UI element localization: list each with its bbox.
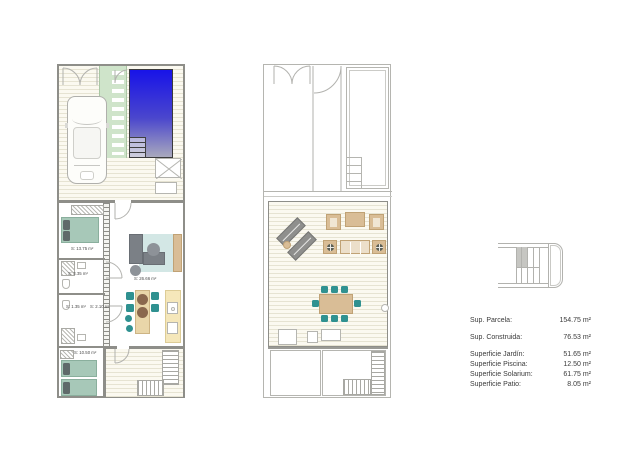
stair-detail — [498, 243, 563, 288]
coffee-table — [345, 212, 365, 227]
area-label: Superficie Patio: — [470, 381, 521, 389]
floor-plan-ground: S: 13.75 m² S: 3.35 m² S: 1.35 m² S: 2.1… — [57, 64, 185, 398]
armchair — [369, 214, 384, 230]
table-row: Superficie Solarium: 61.75 m² — [470, 371, 591, 379]
floor-plan-upper — [263, 64, 391, 398]
plant-icon — [327, 244, 334, 251]
room-lower-left — [270, 350, 321, 396]
table-row: Superficie Jardín: 51.65 m² — [470, 351, 591, 359]
wall-fixture — [381, 304, 389, 312]
upper-band-line — [264, 191, 392, 192]
table-row: Superficie Piscina: 12.50 m² — [470, 361, 591, 369]
dining-chair — [312, 300, 319, 307]
side-table-round — [283, 241, 291, 249]
table-row: Superficie Patio: 8.05 m² — [470, 381, 591, 389]
plant-table — [372, 240, 386, 254]
area-value: 8.05 m² — [567, 381, 591, 389]
dining-chair — [321, 315, 328, 322]
plant-icon — [376, 244, 383, 251]
roof-box — [321, 329, 341, 341]
roof-steps — [347, 157, 362, 188]
table-row: Sup. Construida: 76.53 m² — [470, 334, 591, 342]
upper-band-line-2 — [264, 196, 392, 197]
area-label: Superficie Piscina: — [470, 361, 528, 369]
dining-chair — [354, 300, 361, 307]
door-arcs-ground — [59, 66, 187, 400]
sofa-upper — [340, 240, 370, 254]
area-label: Superficie Solarium: — [470, 371, 533, 379]
wall-rooms-top — [268, 347, 388, 349]
plant-table — [323, 240, 337, 254]
area-value: 154.75 m² — [559, 317, 591, 325]
dining-chair — [331, 315, 338, 322]
roof-box — [307, 331, 318, 343]
dining-table-upper — [319, 294, 353, 314]
stair-flight-lower — [343, 379, 371, 395]
stair-flight-up — [371, 351, 385, 395]
floor-plan-sheet: S: 13.75 m² S: 3.35 m² S: 1.35 m² S: 2.1… — [0, 0, 629, 476]
area-label: Sup. Construida: — [470, 334, 522, 342]
area-label: Superficie Jardín: — [470, 351, 524, 359]
area-value: 61.75 m² — [563, 371, 591, 379]
table-row: Sup. Parcela: 154.75 m² — [470, 317, 591, 325]
dining-chair — [321, 286, 328, 293]
area-label: Sup. Parcela: — [470, 317, 512, 325]
area-value: 76.53 m² — [563, 334, 591, 342]
dining-chair — [331, 286, 338, 293]
area-value: 51.65 m² — [563, 351, 591, 359]
roof-box — [278, 329, 297, 345]
area-summary-table: Sup. Parcela: 154.75 m² Sup. Construida:… — [470, 317, 591, 389]
dining-chair — [341, 286, 348, 293]
armchair — [326, 214, 341, 230]
dining-chair — [341, 315, 348, 322]
area-value: 12.50 m² — [563, 361, 591, 369]
